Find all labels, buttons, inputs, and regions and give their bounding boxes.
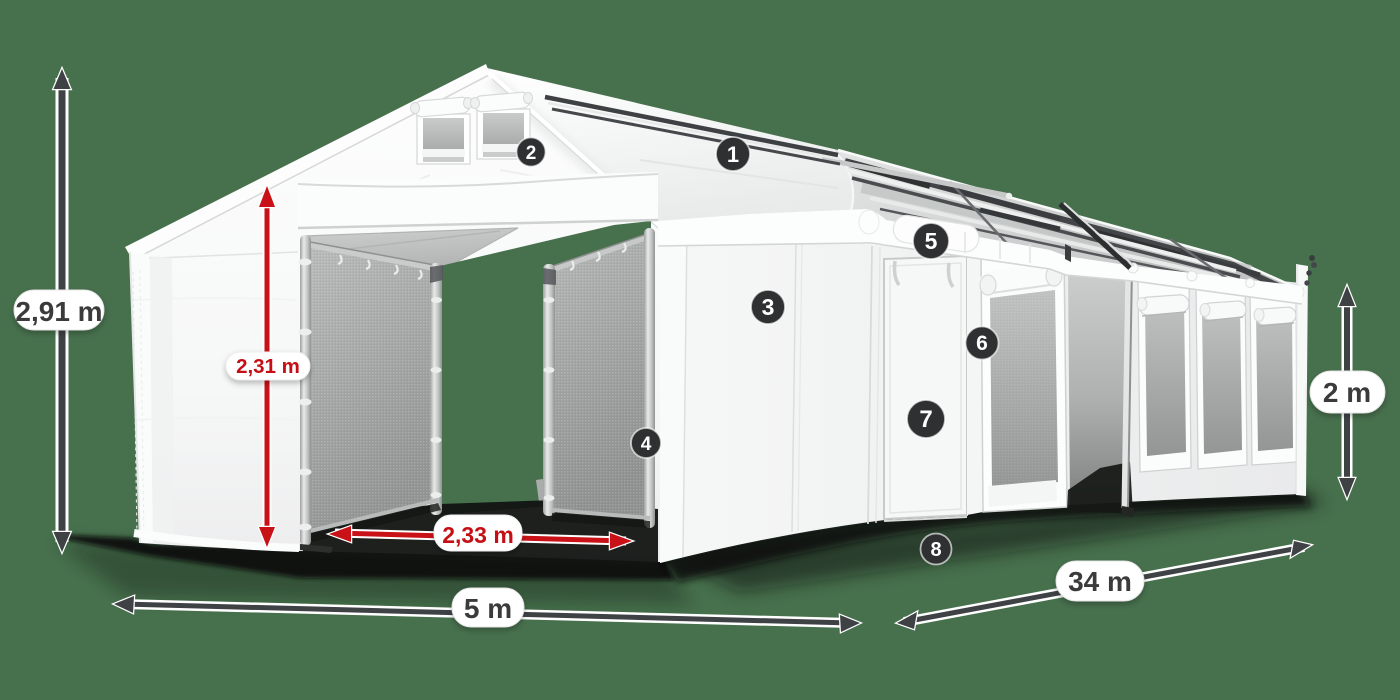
svg-text:2,33 m: 2,33 m bbox=[442, 522, 514, 548]
svg-text:5: 5 bbox=[925, 228, 938, 254]
svg-text:6: 6 bbox=[976, 332, 988, 355]
svg-text:2 m: 2 m bbox=[1323, 377, 1371, 408]
svg-text:1: 1 bbox=[727, 142, 739, 167]
svg-text:3: 3 bbox=[762, 294, 775, 320]
svg-text:2,31 m: 2,31 m bbox=[236, 355, 300, 378]
svg-text:5 m: 5 m bbox=[464, 593, 512, 624]
svg-text:4: 4 bbox=[641, 434, 652, 455]
svg-text:7: 7 bbox=[919, 406, 932, 433]
svg-text:34 m: 34 m bbox=[1068, 566, 1132, 597]
svg-text:2: 2 bbox=[526, 143, 537, 164]
svg-text:2,91 m: 2,91 m bbox=[15, 296, 102, 327]
svg-text:8: 8 bbox=[930, 539, 941, 561]
